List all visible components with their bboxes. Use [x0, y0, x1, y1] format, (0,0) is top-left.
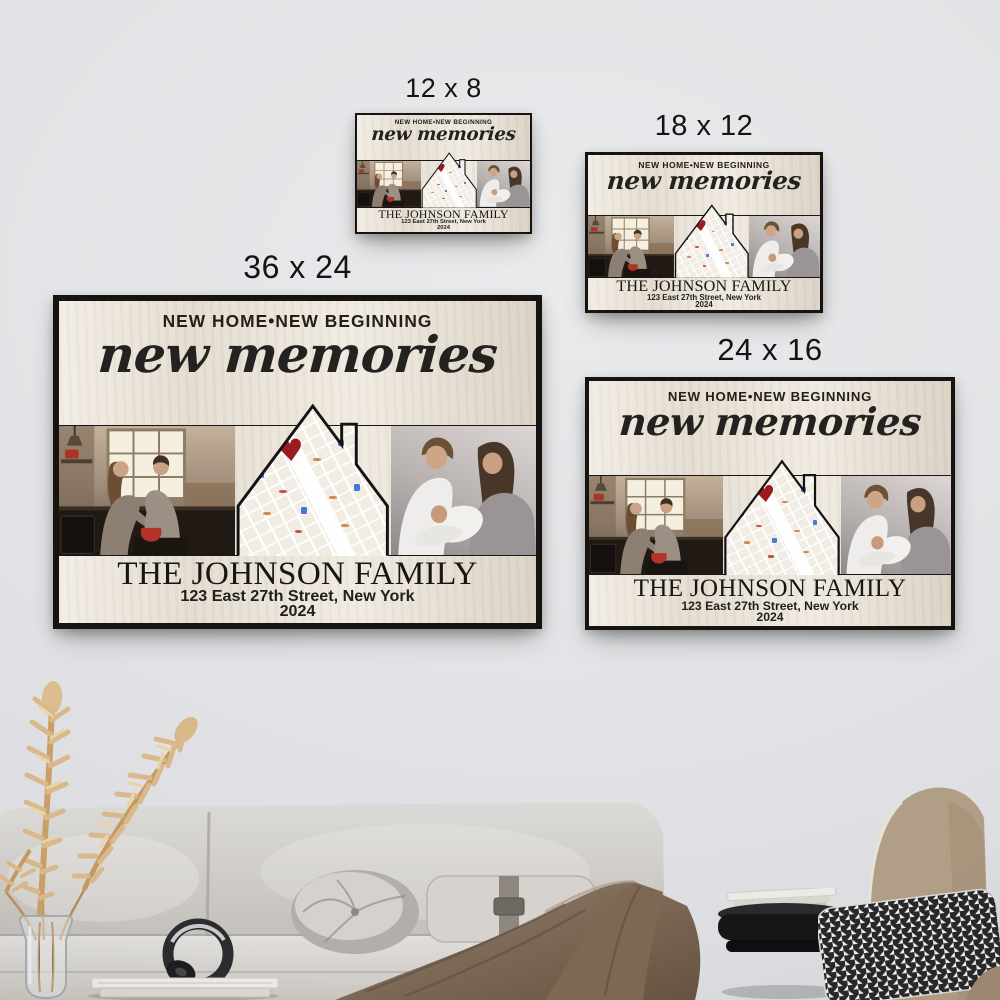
canvas-artwork: NEW HOME•NEW BEGINNING new memories — [589, 381, 951, 626]
kitchen-photo-illustration — [589, 476, 723, 574]
magazine-stack — [92, 978, 278, 997]
kitchen-photo — [588, 216, 674, 277]
canvas-artwork: NEW HOME•NEW BEGINNING new memories — [59, 301, 536, 623]
poster-18x12: 18 x 12 NEW HOME•NEW BEGINNING new memor… — [585, 152, 823, 313]
kitchen-photo-illustration — [588, 216, 674, 277]
canvas-artwork: NEW HOME•NEW BEGINNING new memories — [357, 115, 530, 232]
living-room-scene: 12 x 8 NEW HOME•NEW BEGINNING new memori… — [0, 0, 1000, 1000]
kitchen-photo — [59, 426, 235, 555]
house-outline-icon — [674, 204, 750, 277]
map-house: ♥ — [723, 459, 841, 575]
armchair — [818, 782, 1000, 1000]
canvas-frame-12x8: NEW HOME•NEW BEGINNING new memories — [355, 113, 532, 234]
house-outline-icon — [421, 152, 477, 207]
script-title: new memories — [357, 125, 530, 144]
pampas-plume — [74, 713, 202, 890]
family-photo — [749, 216, 820, 277]
family-photo-illustration — [477, 161, 530, 207]
round-tufted-pillow — [291, 870, 419, 954]
year-text: 2024 — [357, 225, 530, 231]
glass-vase — [20, 916, 72, 998]
kitchen-photo — [357, 161, 421, 207]
poster-36x24: 36 x 24 NEW HOME•NEW BEGINNING new memor… — [53, 295, 542, 629]
size-label-12x8: 12 x 8 — [405, 73, 482, 104]
map-house: ♥ — [421, 152, 477, 207]
kitchen-photo — [589, 476, 723, 574]
poster-24x16: 24 x 16 NEW HOME•NEW BEGINNING new memor… — [585, 377, 955, 630]
family-photo-illustration — [391, 426, 536, 555]
script-title: new memories — [588, 168, 820, 194]
size-label-24x16: 24 x 16 — [717, 332, 822, 368]
canvas-frame-24x16: NEW HOME•NEW BEGINNING new memories — [585, 377, 955, 630]
poster-12x8: 12 x 8 NEW HOME•NEW BEGINNING new memori… — [355, 113, 532, 234]
house-outline-icon — [235, 403, 391, 556]
houndstooth-pillow — [818, 888, 1000, 1000]
year-text: 2024 — [59, 602, 536, 621]
headphones-books-illustration — [78, 912, 293, 1000]
pampas-plume — [25, 680, 68, 915]
family-photo — [477, 161, 530, 207]
canvas-frame-18x12: NEW HOME•NEW BEGINNING new memories — [585, 152, 823, 313]
family-photo — [841, 476, 951, 574]
house-outline-icon — [723, 459, 841, 575]
size-label-18x12: 18 x 12 — [655, 110, 754, 143]
year-text: 2024 — [589, 610, 951, 624]
kitchen-photo-illustration — [357, 161, 421, 207]
map-house: ♥ — [235, 403, 391, 556]
script-title: new memories — [59, 329, 536, 382]
pampas-plume — [0, 850, 34, 892]
family-photo-illustration — [749, 216, 820, 277]
family-photo — [391, 426, 536, 555]
script-title: new memories — [589, 402, 951, 442]
kitchen-photo-illustration — [59, 426, 235, 555]
family-photo-illustration — [841, 476, 951, 574]
canvas-frame-36x24: NEW HOME•NEW BEGINNING new memories — [53, 295, 542, 629]
map-house: ♥ — [674, 204, 750, 277]
year-text: 2024 — [588, 300, 820, 309]
coffee-table-items — [78, 912, 293, 1000]
armchair-illustration — [818, 782, 1000, 1000]
canvas-artwork: NEW HOME•NEW BEGINNING new memories — [588, 155, 820, 310]
size-label-36x24: 36 x 24 — [243, 249, 351, 286]
